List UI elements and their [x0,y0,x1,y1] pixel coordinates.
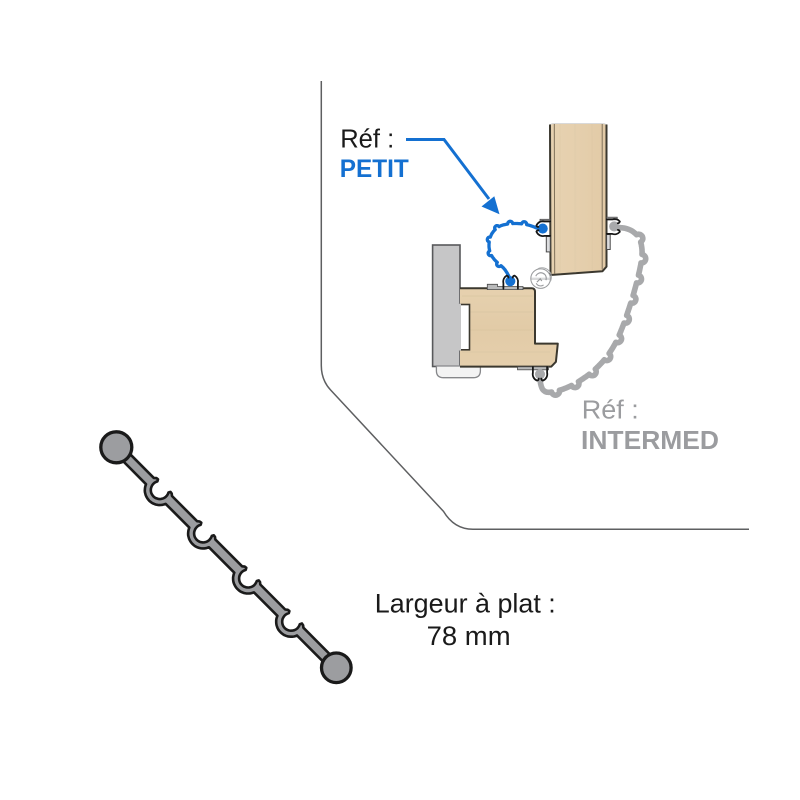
svg-text:INTERMED: INTERMED [581,425,719,455]
svg-text:Réf :: Réf : [582,394,639,424]
svg-text:PETIT: PETIT [340,155,409,183]
svg-text:Réf :: Réf : [340,123,394,153]
svg-text:Largeur à plat :: Largeur à plat : [375,588,556,618]
svg-text:78 mm: 78 mm [427,621,511,651]
